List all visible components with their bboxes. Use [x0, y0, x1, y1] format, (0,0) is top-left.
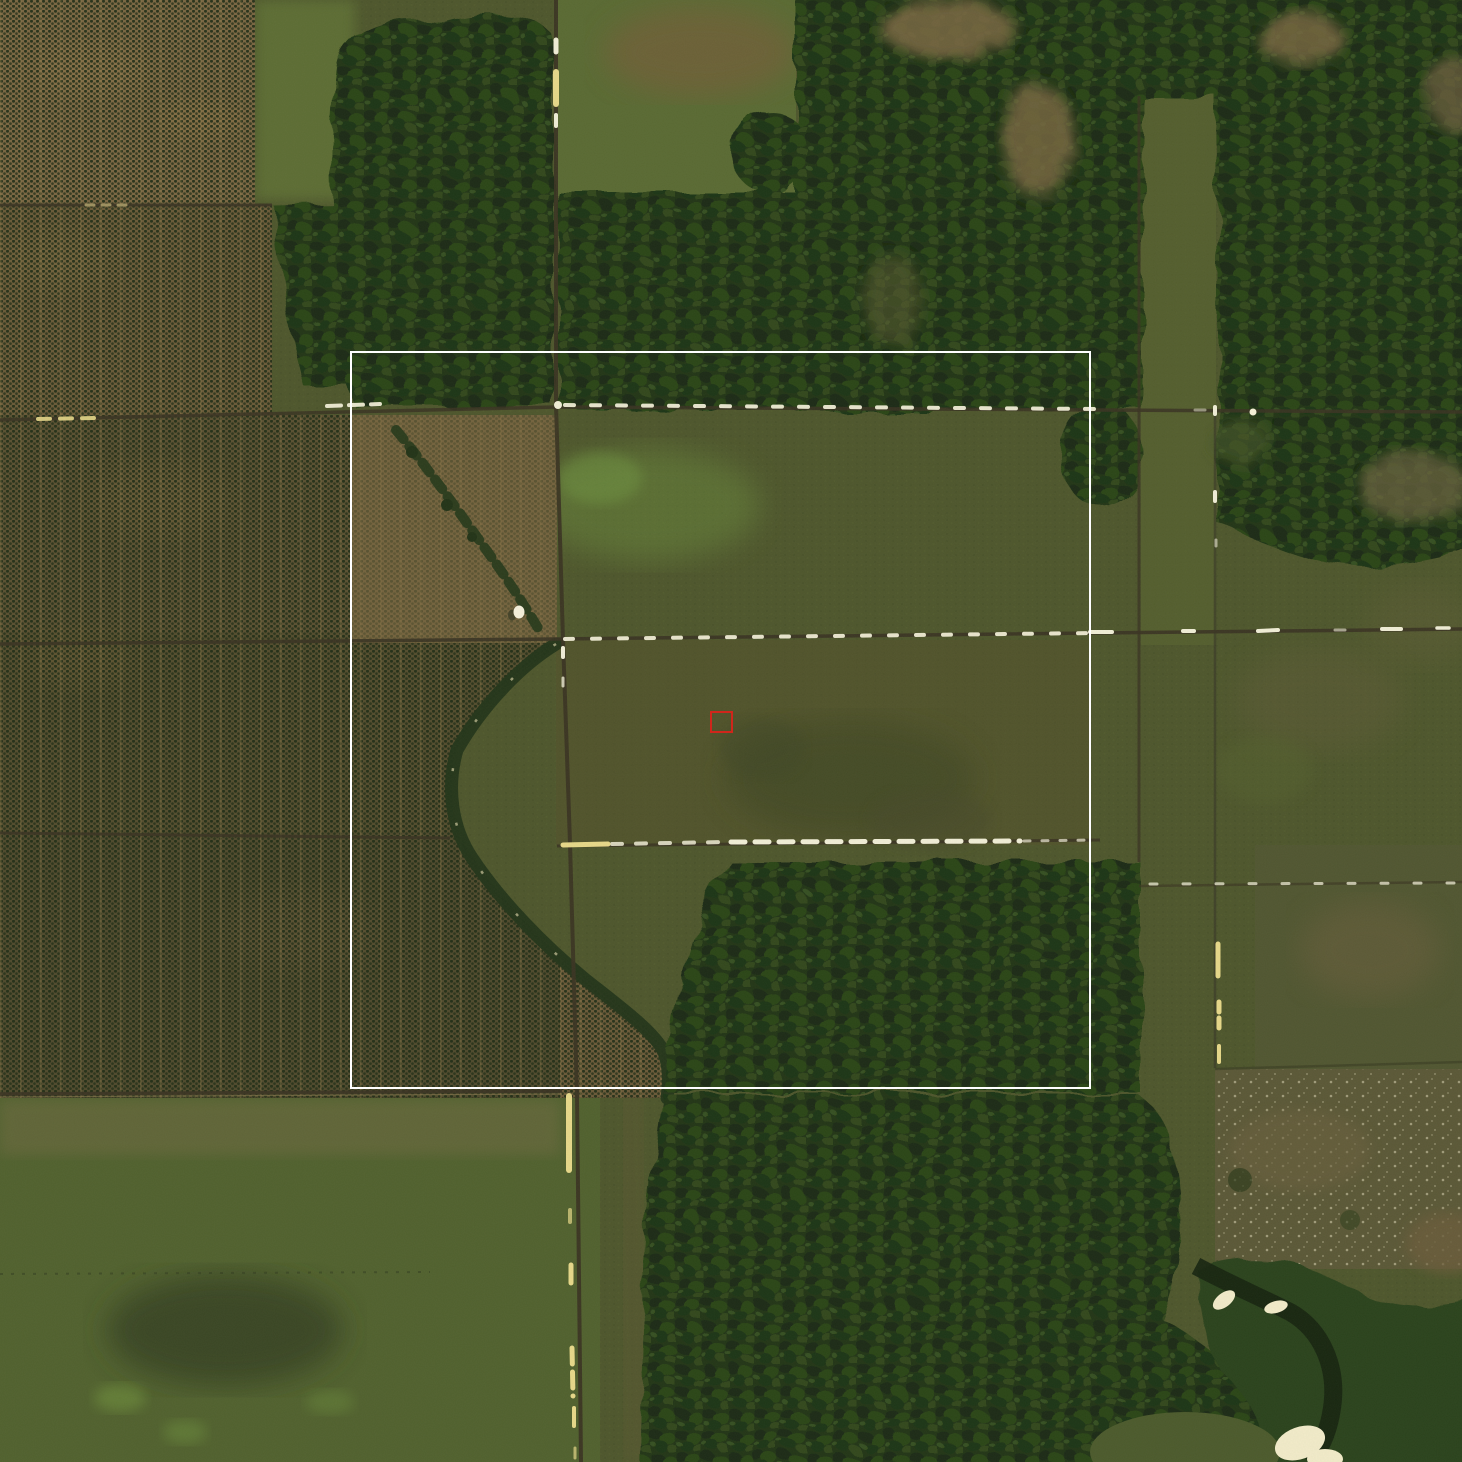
satellite-image-viewport	[0, 0, 1462, 1462]
target-marker-box	[710, 711, 733, 733]
